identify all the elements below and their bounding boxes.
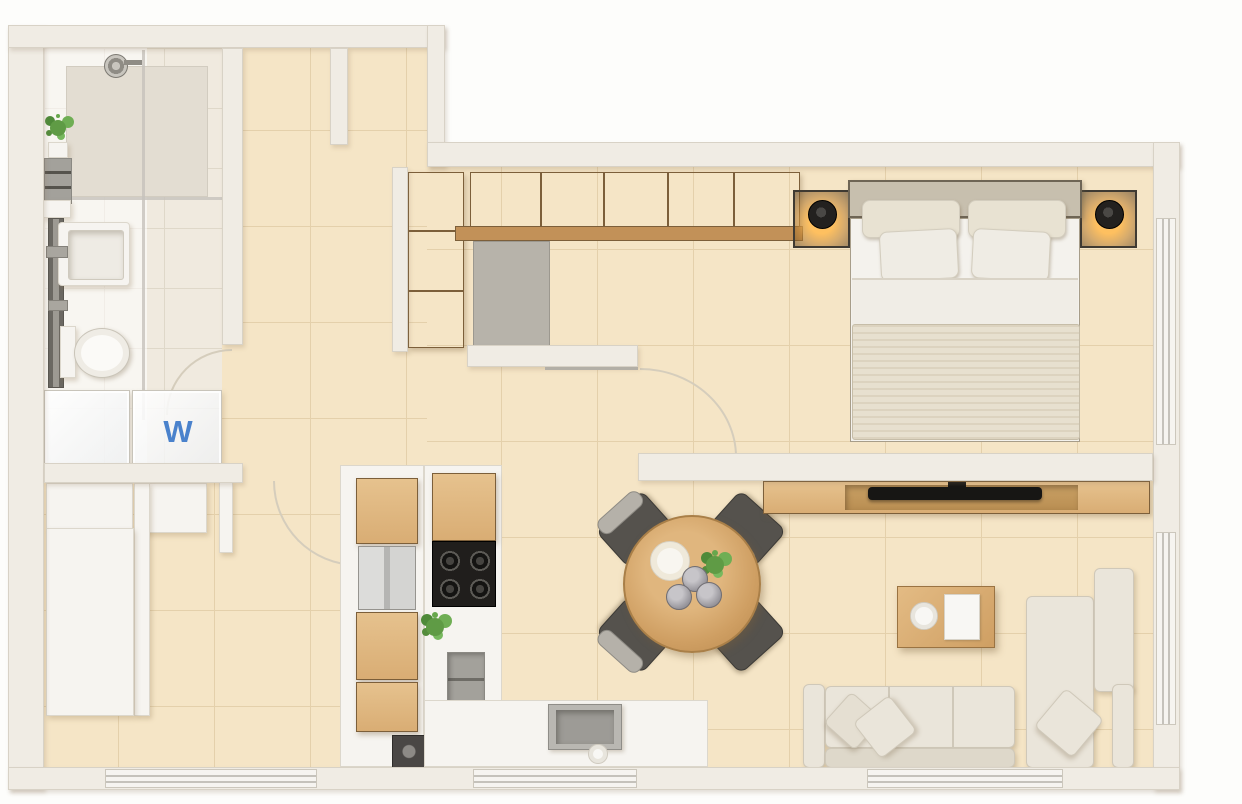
wall-outer-top-right — [427, 142, 1180, 167]
window-living-bottom — [867, 769, 1063, 788]
wall-stub-corridor-top — [330, 48, 348, 145]
wall-bathroom-divider — [222, 48, 243, 345]
bed-duvet — [852, 324, 1080, 440]
range-cabinet — [432, 473, 496, 541]
closet-upper-cabinets — [470, 172, 800, 228]
sofa-seat-front — [825, 748, 1015, 768]
wall-outer-left — [8, 25, 44, 790]
window-living-right — [1156, 532, 1176, 725]
wall-bedroom-living-partition — [638, 453, 1153, 481]
shower-head-icon — [104, 54, 128, 78]
bedside-lamp-icon-left — [808, 200, 837, 229]
kitchen-cabinet-mid — [356, 612, 418, 680]
bathroom-ledge — [43, 200, 71, 218]
hall-cabinet-upper-b — [143, 483, 207, 533]
closet-floor-mat — [473, 241, 550, 348]
kitchen-faucet-icon — [588, 744, 608, 764]
shower-glass-panel-vertical — [142, 50, 145, 200]
wall-closet-stub — [467, 345, 638, 367]
shower-floor — [66, 66, 208, 197]
closet-cabinet-base — [455, 226, 803, 241]
coffee-table-cup-icon — [910, 602, 938, 630]
toilet-icon — [74, 328, 130, 378]
bed-pillow-front-right — [971, 228, 1052, 282]
bedside-lamp-icon-right — [1095, 200, 1124, 229]
bathroom-glass-partition — [142, 200, 145, 420]
shower-arm — [124, 60, 142, 65]
kitchen-cabinet-top — [356, 478, 418, 544]
bed-sheet-fold — [852, 278, 1078, 326]
bathroom-shelf-unit — [44, 158, 72, 204]
hall-cabinet-upper-a — [46, 483, 133, 531]
hall-wardrobe-side-panel — [134, 483, 150, 716]
kitchen-cabinet-low — [356, 682, 418, 732]
washing-machine-label: W — [153, 416, 203, 447]
bedroom-door-leaf — [545, 367, 638, 370]
window-hall-bottom — [105, 769, 317, 788]
bed-pillow-front-left — [879, 228, 960, 282]
toilet-water-tap-icon — [48, 300, 68, 311]
washbasin-bowl — [68, 230, 124, 280]
kitchen-plant-icon — [426, 618, 444, 636]
cooktop-icon — [432, 541, 496, 607]
kitchen-sink-basin — [556, 710, 614, 744]
bathroom-plant-pot — [48, 142, 68, 158]
closet-wardrobe-column — [408, 172, 464, 348]
window-bedroom-right — [1156, 218, 1176, 445]
bathroom-plant-icon — [50, 120, 66, 136]
tv-icon — [868, 487, 1042, 500]
table-bowl-b — [666, 584, 692, 610]
hall-wardrobe — [46, 528, 134, 716]
sofa-chaise-back — [1094, 568, 1134, 692]
washbasin-faucet-icon — [46, 246, 68, 258]
table-bowl-c — [696, 582, 722, 608]
wall-bathroom-bottom — [44, 463, 243, 483]
laundry-cabinet — [44, 390, 130, 474]
sofa-armrest-right — [1112, 684, 1134, 768]
fridge-icon — [358, 546, 416, 610]
counter-shelf-inset — [447, 652, 485, 706]
sofa-armrest-left — [803, 684, 825, 768]
dining-table-plant-icon — [706, 556, 724, 574]
coffee-table-tray — [944, 594, 980, 640]
wall-outer-top-left — [8, 25, 445, 48]
hall-door-leaf — [219, 481, 233, 553]
oven-icon — [392, 735, 426, 768]
apartment-floor-plan: W — [0, 0, 1242, 804]
window-kitchen-bottom — [473, 769, 637, 788]
wall-closet-left — [392, 167, 408, 352]
